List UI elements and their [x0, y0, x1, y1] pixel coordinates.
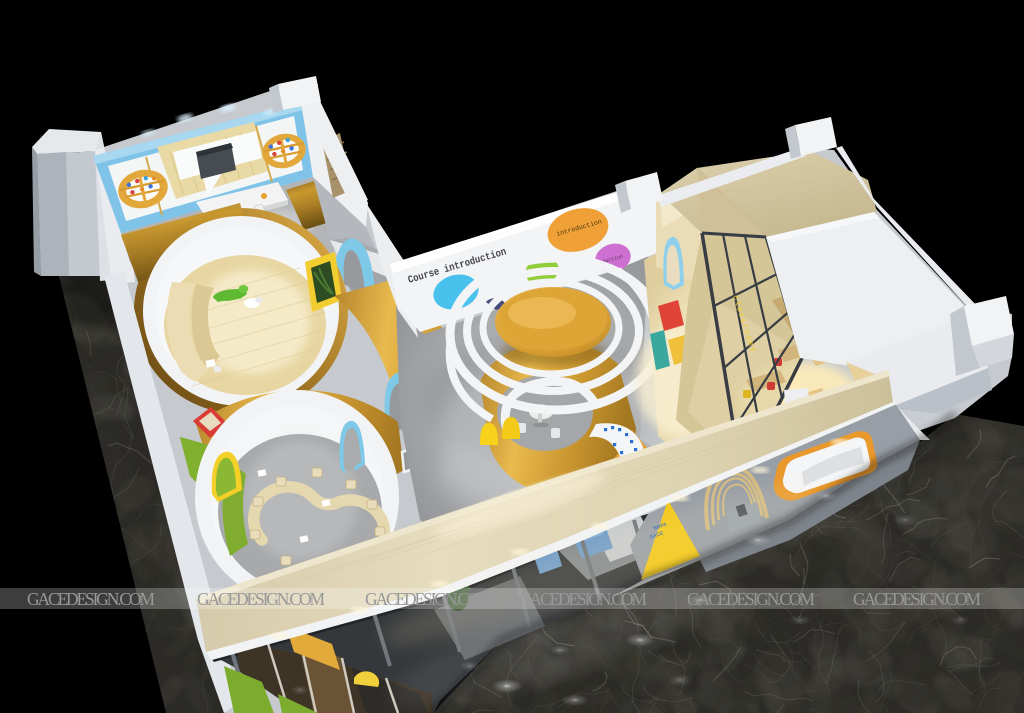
- svg-text:GACEDESIGN.COM: GACEDESIGN.COM: [687, 589, 815, 609]
- svg-text:GACEDESIGN.COM: GACEDESIGN.COM: [365, 589, 493, 609]
- svg-text:GACEDESIGN.COM: GACEDESIGN.COM: [27, 589, 155, 609]
- svg-text:GACEDESIGN.COM: GACEDESIGN.COM: [519, 589, 647, 609]
- svg-text:GACEDESIGN.COM: GACEDESIGN.COM: [197, 589, 325, 609]
- svg-text:GACEDESIGN.COM: GACEDESIGN.COM: [853, 589, 981, 609]
